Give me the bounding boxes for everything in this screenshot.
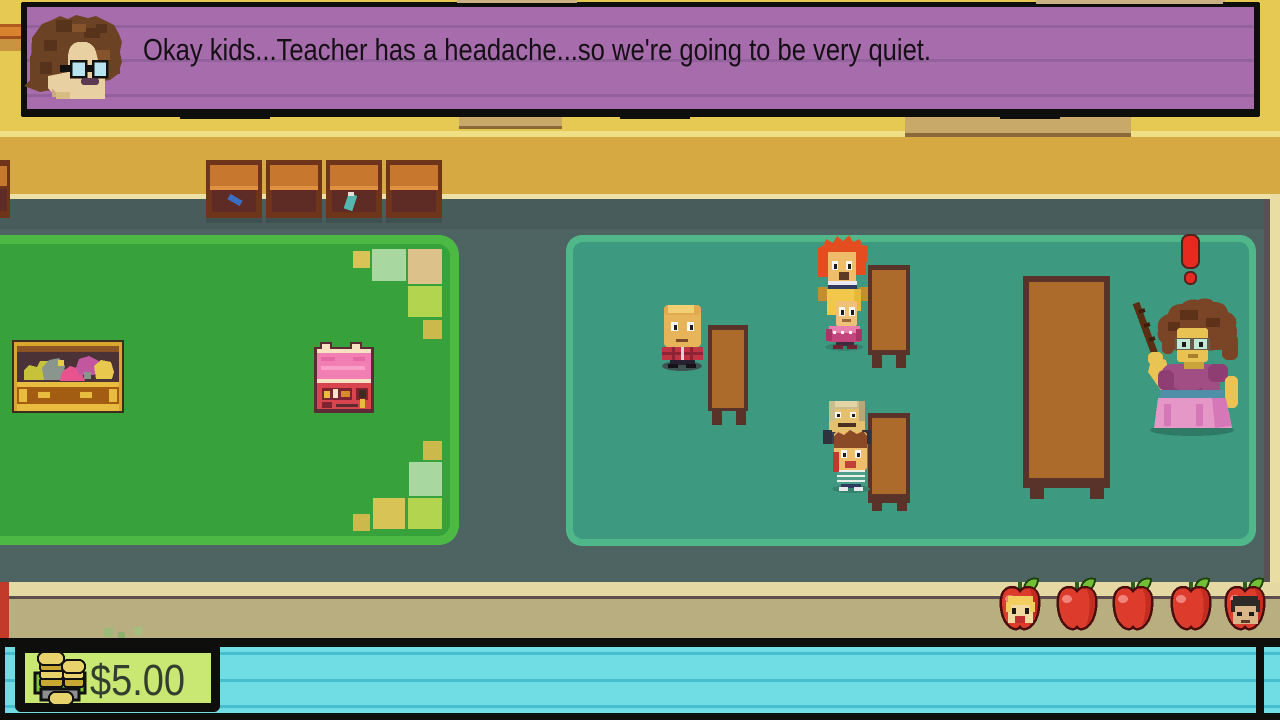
svg-text:$5.00: $5.00 — [90, 656, 185, 705]
svg-text:Okay kids...Teacher has a head: Okay kids...Teacher has a headache...so … — [143, 32, 931, 67]
